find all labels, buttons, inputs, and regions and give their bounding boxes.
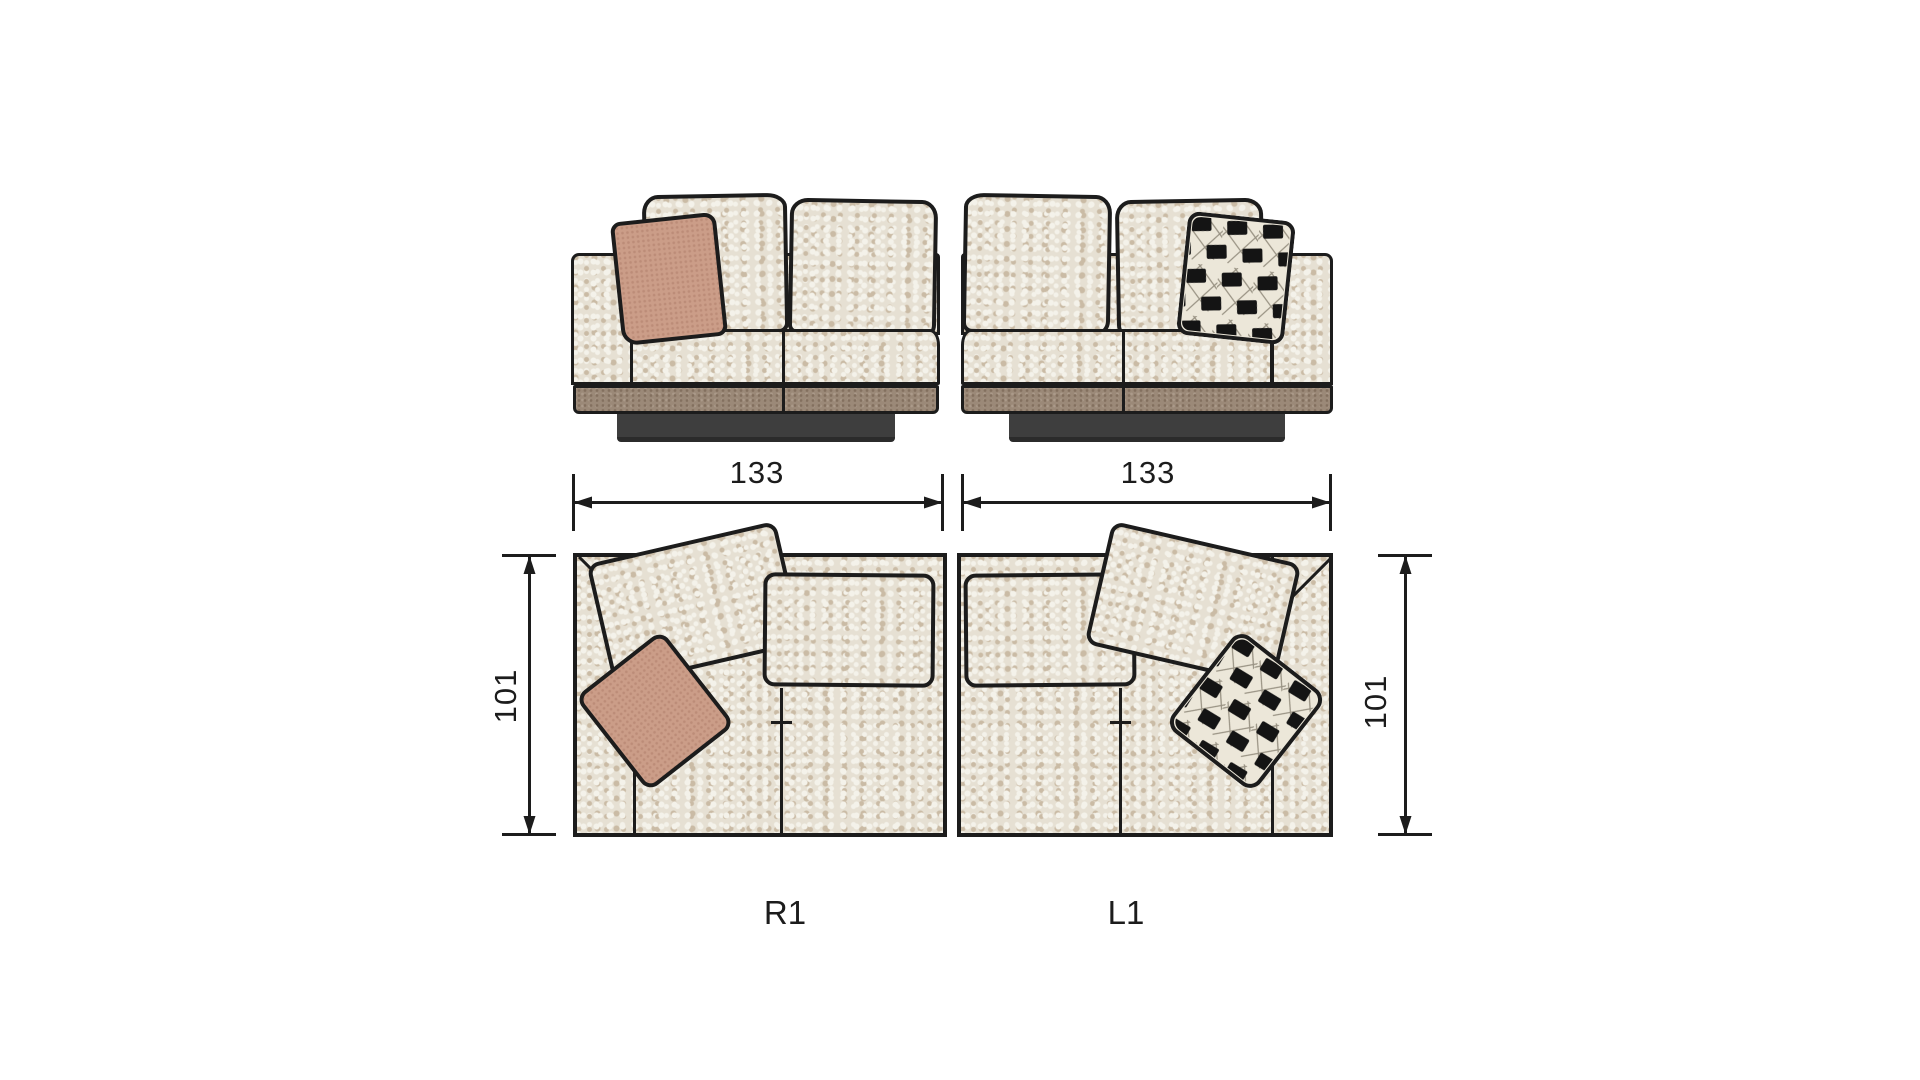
l1-base-band-seam (1122, 388, 1125, 411)
arrow-down-icon (1400, 816, 1412, 835)
r1-base-band (573, 385, 939, 414)
l1-depth-label: 101 (1358, 644, 1394, 760)
arrow-up-icon (1400, 556, 1412, 575)
arrow-down-icon (524, 816, 536, 835)
arrow-up-icon (524, 556, 536, 575)
r1-seat-seam (782, 332, 785, 382)
l1-base-band (961, 385, 1333, 414)
l1-top-view (0, 0, 1920, 1080)
r1-top-seam-tick (771, 721, 792, 724)
l1-accent-pillow-check (1176, 211, 1296, 346)
r1-accent-pillow-terracotta (610, 212, 728, 346)
l1-top-seam-tick (1110, 721, 1131, 724)
r1-base-band-seam (782, 388, 785, 411)
spec-sheet: 133 133 10 (0, 0, 1920, 1080)
r1-top-back-cushion (763, 572, 936, 687)
l1-back-pillow-left (962, 193, 1112, 336)
r1-module-code: R1 (726, 894, 844, 932)
l1-plinth (1009, 414, 1285, 442)
r1-plinth (617, 414, 895, 442)
r1-top-seat-seam (780, 688, 783, 835)
l1-seat-seam (1122, 332, 1125, 382)
l1-top-seat-seam (1119, 688, 1122, 835)
r1-back-pillow-right (788, 198, 938, 338)
l1-module-code: L1 (1067, 894, 1185, 932)
r1-depth-label: 101 (488, 638, 524, 754)
